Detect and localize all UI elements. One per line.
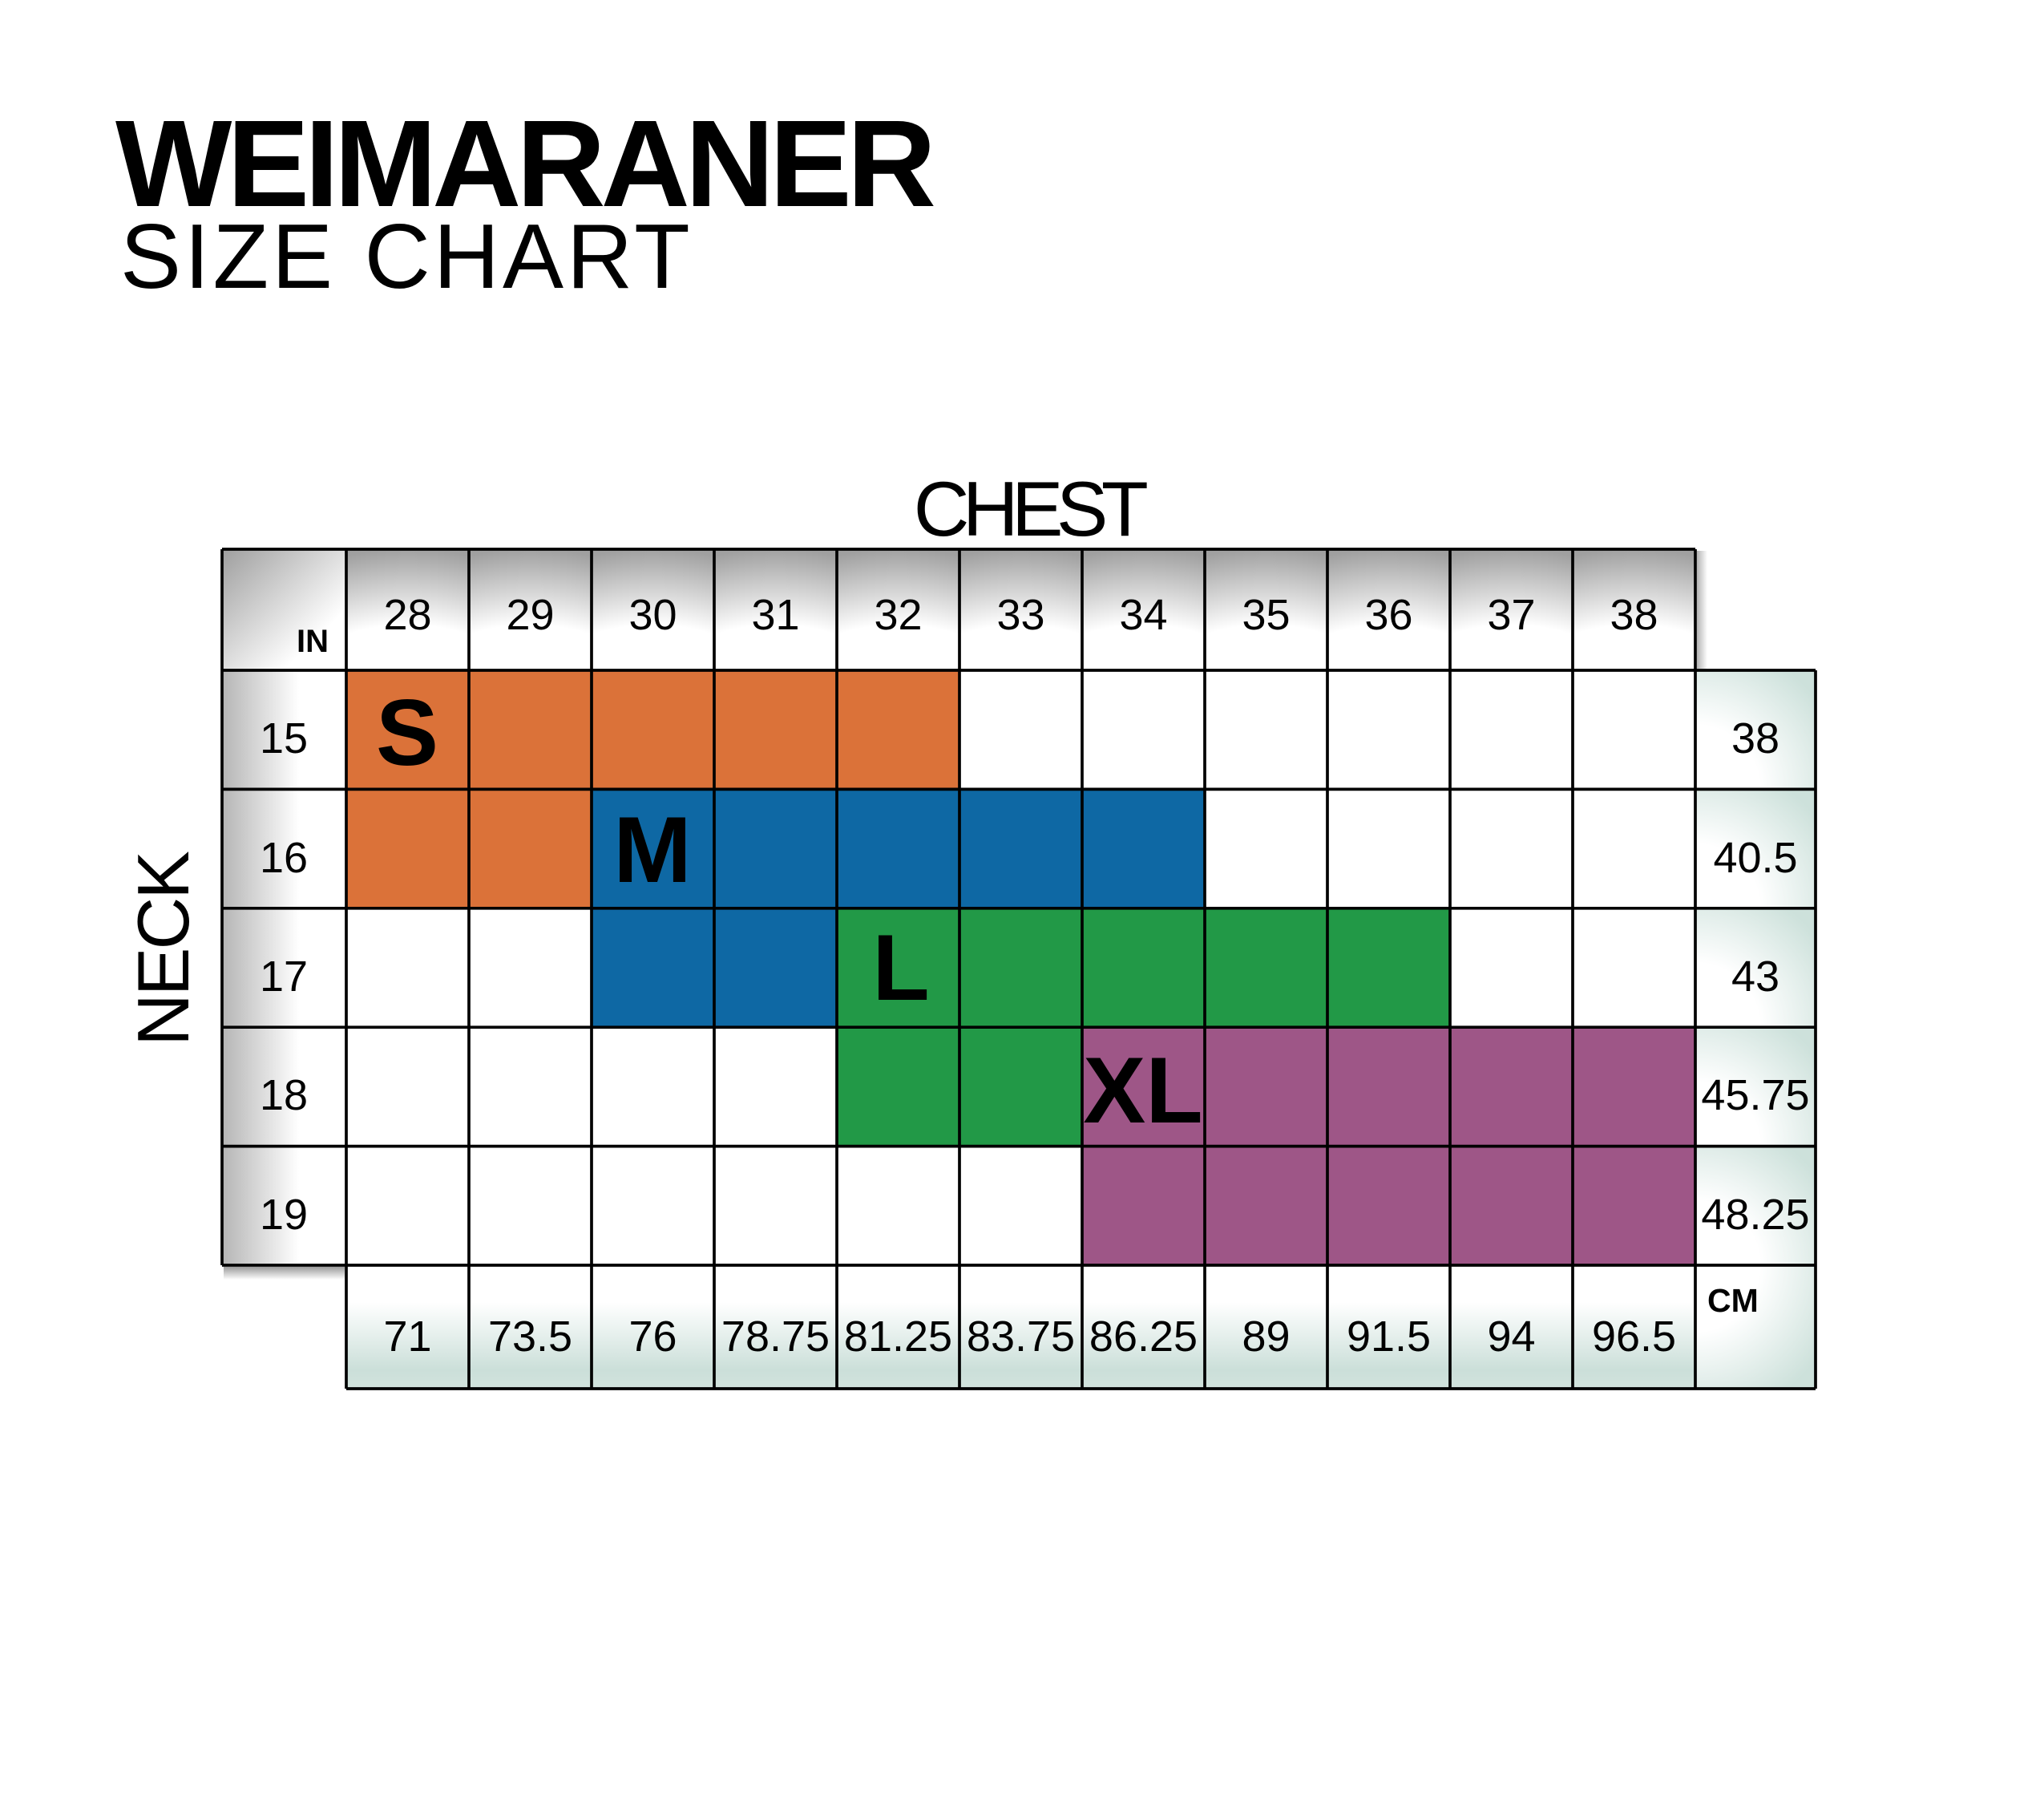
svg-text:16: 16 (260, 834, 308, 882)
svg-text:CM: CM (1707, 1282, 1759, 1319)
svg-text:17: 17 (260, 953, 308, 1001)
svg-text:32: 32 (874, 591, 922, 639)
svg-text:19: 19 (260, 1191, 308, 1239)
svg-text:83.75: 83.75 (967, 1313, 1075, 1361)
svg-text:45.75: 45.75 (1701, 1071, 1809, 1119)
svg-text:48.25: 48.25 (1701, 1191, 1809, 1239)
svg-text:91.5: 91.5 (1347, 1313, 1431, 1361)
svg-text:L: L (872, 915, 929, 1020)
svg-text:94: 94 (1487, 1313, 1535, 1361)
svg-text:81.25: 81.25 (844, 1313, 952, 1361)
svg-text:S: S (376, 680, 438, 785)
svg-text:SIZE CHART: SIZE CHART (120, 206, 693, 308)
svg-text:30: 30 (628, 591, 677, 639)
svg-text:34: 34 (1119, 591, 1167, 639)
svg-text:NECK: NECK (123, 851, 204, 1046)
svg-text:M: M (613, 797, 691, 902)
svg-text:36: 36 (1364, 591, 1412, 639)
svg-text:71: 71 (383, 1313, 431, 1361)
svg-text:37: 37 (1487, 591, 1535, 639)
svg-text:76: 76 (628, 1313, 677, 1361)
svg-text:IN: IN (297, 624, 329, 659)
svg-text:CHEST: CHEST (914, 467, 1147, 552)
svg-text:18: 18 (260, 1071, 308, 1119)
svg-text:XL: XL (1083, 1038, 1203, 1143)
svg-text:31: 31 (751, 591, 799, 639)
svg-text:33: 33 (996, 591, 1044, 639)
svg-text:89: 89 (1242, 1313, 1290, 1361)
svg-text:29: 29 (506, 591, 554, 639)
svg-text:35: 35 (1242, 591, 1290, 639)
svg-text:43: 43 (1731, 953, 1779, 1001)
svg-text:38: 38 (1610, 591, 1658, 639)
svg-text:28: 28 (383, 591, 431, 639)
svg-text:38: 38 (1731, 714, 1779, 762)
svg-text:15: 15 (260, 714, 308, 762)
svg-text:78.75: 78.75 (721, 1313, 830, 1361)
svg-text:73.5: 73.5 (488, 1313, 572, 1361)
svg-text:96.5: 96.5 (1592, 1313, 1676, 1361)
svg-text:40.5: 40.5 (1713, 834, 1797, 882)
svg-text:86.25: 86.25 (1089, 1313, 1198, 1361)
